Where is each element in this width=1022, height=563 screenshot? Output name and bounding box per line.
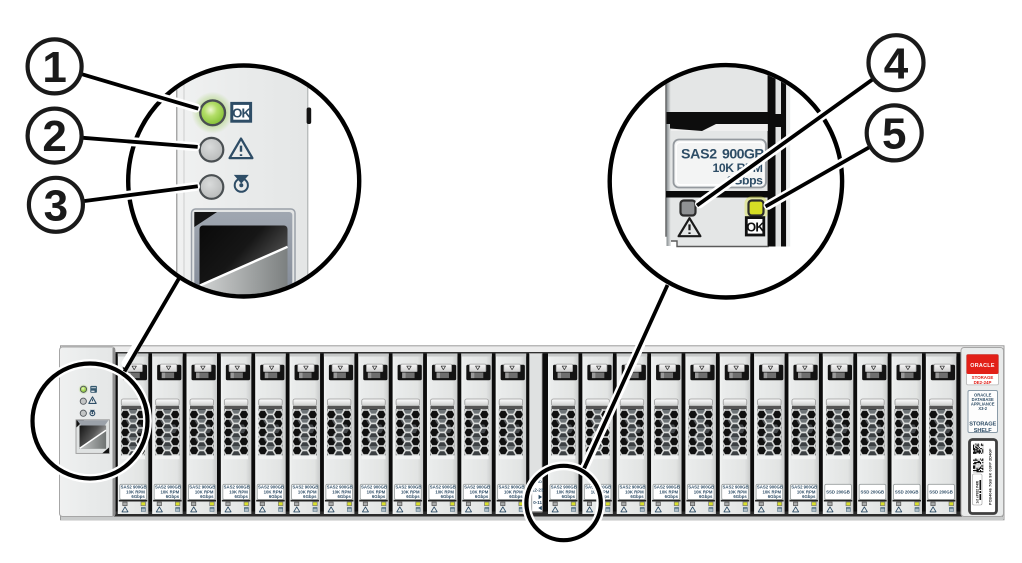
svg-text:DE2-24P: DE2-24P: [974, 380, 992, 385]
svg-text:OK: OK: [746, 221, 764, 235]
svg-text:3: 3: [44, 181, 68, 230]
svg-text:1: 1: [42, 43, 66, 92]
svg-text:1et eP832 P4W: 1et eP832 P4W: [976, 481, 980, 504]
svg-text:2: 2: [42, 112, 66, 161]
svg-text:STORAGE: STORAGE: [969, 422, 996, 428]
svg-text:OK: OK: [232, 106, 251, 121]
svg-text:5: 5: [882, 110, 906, 159]
svg-text:0-11: 0-11: [533, 500, 542, 505]
svg-text:ORACLE: ORACLE: [970, 363, 995, 369]
svg-text:SHELF: SHELF: [974, 428, 993, 434]
svg-text:PCB4046 7GB 9K 03FP 2D4GF: PCB4046 7GB 9K 03FP 2D4GF: [989, 448, 993, 505]
svg-text:4: 4: [884, 39, 909, 88]
svg-text:X3-2: X3-2: [978, 406, 987, 411]
